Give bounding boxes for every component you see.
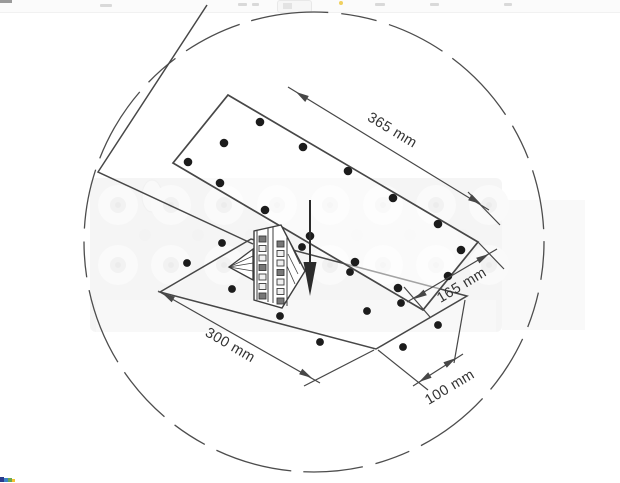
favicon-color-block (12, 479, 15, 482)
dim-label-365: 365 mm (364, 110, 419, 152)
dim-label-100: 100 mm (422, 367, 477, 409)
screenshot-root: { "window": { "toolbar_fragment": "cut-o… (0, 0, 620, 483)
diagram-canvas: 300 mm 100 mm 365 mm 165 mm (0, 0, 620, 483)
taskbar-favicon-fragment[interactable] (0, 476, 18, 483)
